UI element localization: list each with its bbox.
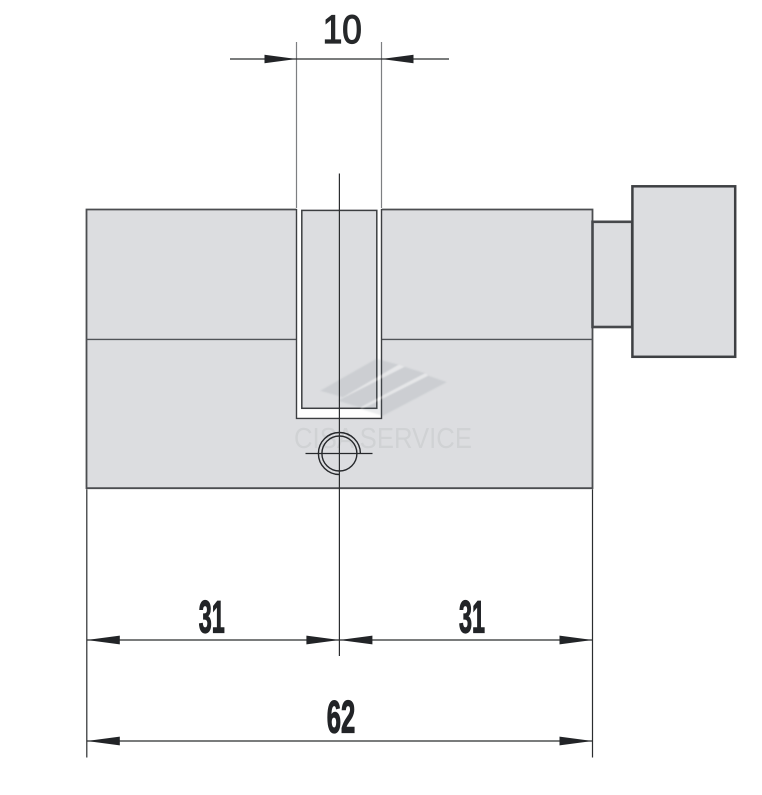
svg-text:CISA SERVICE: CISA SERVICE	[294, 423, 472, 455]
svg-text:10: 10	[323, 8, 362, 52]
svg-text:31: 31	[199, 591, 225, 642]
svg-text:31: 31	[459, 591, 485, 642]
svg-text:62: 62	[327, 692, 356, 743]
